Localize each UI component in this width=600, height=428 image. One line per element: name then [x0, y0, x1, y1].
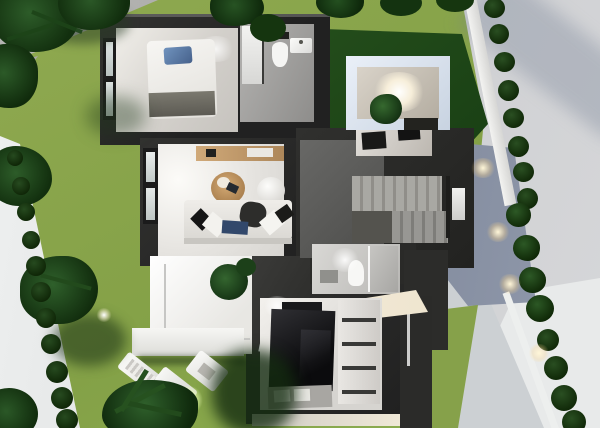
courtyard-opening [404, 118, 438, 130]
bath2-cabinet [320, 270, 338, 283]
bush-left-10 [51, 387, 73, 409]
garden-light-small [96, 308, 112, 322]
shelf-item-white [247, 148, 273, 157]
courtyard-plant [370, 94, 402, 124]
bush-left-9 [46, 361, 68, 383]
bush-street-5 [503, 108, 524, 128]
skylight-1 [361, 131, 386, 150]
bush-street-6 [508, 136, 529, 157]
bed-pillow-blue [163, 46, 192, 65]
bush-street-3 [494, 52, 515, 72]
toilet-1 [272, 42, 288, 67]
closet-card-2 [294, 389, 310, 402]
shower-glass [368, 246, 370, 292]
wall-light-glow-1 [470, 158, 496, 178]
bedroom-window-glass-1 [106, 42, 113, 76]
bush-bottomright-3 [551, 385, 577, 411]
stairs-landing [352, 211, 392, 243]
bush-left-5 [26, 256, 46, 276]
terrace-plant-2 [236, 258, 256, 276]
bush-bottomright-2 [544, 356, 568, 380]
house-roof-right-strip [400, 296, 432, 428]
closet-shelf-slot-1 [342, 318, 376, 322]
bath2-glow [330, 248, 360, 272]
bush-left-6 [31, 282, 51, 302]
plant-right-3 [519, 267, 546, 293]
sink-faucet [299, 40, 303, 44]
closet-shelf-slot-3 [342, 366, 376, 370]
wall-light-glow-3 [498, 274, 522, 294]
shower-area [370, 246, 398, 292]
bush-left-7 [36, 308, 56, 328]
bed-blanket [149, 91, 216, 117]
sofa-front-edge [184, 238, 292, 244]
shadow-lawn-mid [86, 96, 146, 136]
bush-street-4 [498, 80, 519, 101]
shelf-item-dark [206, 149, 216, 157]
shadow-canopy-bottom [212, 350, 296, 428]
living-window-glass-1 [146, 152, 155, 182]
stairs-upper [352, 176, 442, 211]
closet-wardrobe-sheen [299, 329, 331, 386]
bush-left-2 [12, 177, 30, 195]
bush-left-3 [17, 203, 35, 221]
living-window-glass-2 [146, 188, 155, 220]
stair-rail [446, 176, 450, 238]
bush-left-1 [7, 150, 23, 166]
closet-shelf-slot-2 [342, 342, 376, 346]
plant-right-1 [506, 203, 531, 227]
closet-shelving [338, 300, 380, 404]
wall-light-glow-2 [486, 222, 510, 242]
bush-bottomright-4 [562, 410, 586, 428]
roof-strip-white-line [407, 308, 410, 366]
bush-left-8 [41, 334, 61, 354]
bush-street-7 [513, 162, 534, 182]
stairs-lower [392, 211, 448, 243]
bush-street-2 [489, 24, 509, 44]
plant-right-2 [513, 235, 540, 261]
plant-right-4 [526, 295, 554, 322]
terrace-parapet-bottom [132, 328, 244, 356]
canopy-top-2 [250, 14, 286, 42]
bush-left-11 [56, 409, 78, 428]
floorplan-render [0, 0, 600, 428]
closet-shelf-slot-4 [342, 390, 376, 394]
sofa-pillow-navy [222, 220, 249, 235]
stair-wall-white [452, 188, 465, 220]
bush-left-4 [22, 231, 40, 249]
wall-light-glow-4 [528, 344, 550, 362]
